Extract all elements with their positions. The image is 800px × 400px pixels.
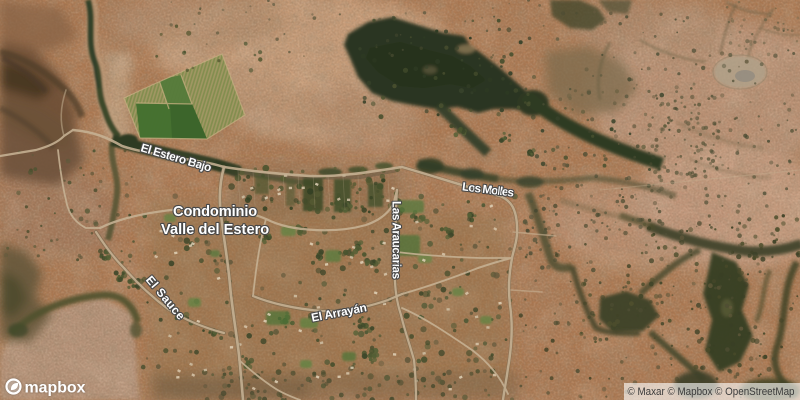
svg-text:mapbox: mapbox: [25, 380, 86, 397]
svg-text:Las Araucarias: Las Araucarias: [390, 201, 404, 280]
svg-text:© Maxar © Mapbox © OpenStreetM: © Maxar © Mapbox © OpenStreetMap: [628, 386, 795, 398]
svg-text:Condominio: Condominio: [173, 204, 257, 220]
svg-text:Valle del Estero: Valle del Estero: [161, 222, 269, 238]
